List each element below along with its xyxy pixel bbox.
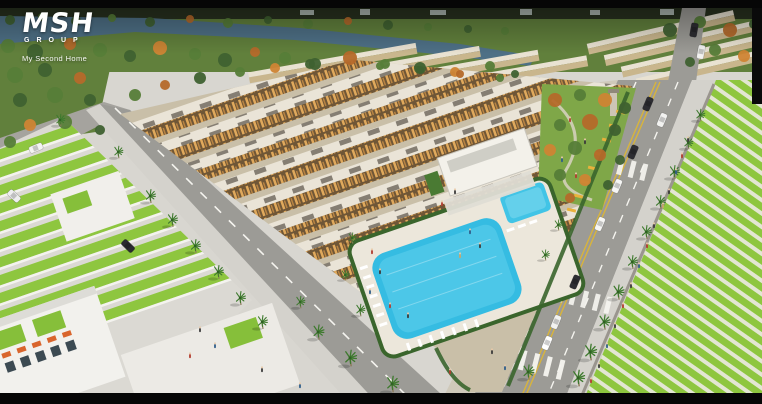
tree	[685, 57, 695, 67]
tree	[554, 169, 566, 181]
tree	[615, 155, 625, 165]
tree	[235, 67, 245, 77]
person	[389, 302, 391, 308]
tree	[84, 94, 96, 106]
person	[261, 366, 263, 372]
person	[687, 136, 689, 142]
tree	[194, 72, 206, 84]
tree	[619, 102, 631, 114]
tree	[579, 174, 591, 186]
tree	[603, 180, 613, 190]
person	[454, 188, 456, 194]
tree	[554, 119, 566, 131]
tree	[160, 80, 170, 90]
msh-group-logo: MSH GROUP My Second Home	[22, 13, 94, 63]
tree	[270, 63, 280, 73]
tree	[496, 74, 504, 82]
tree	[7, 67, 23, 83]
tree	[511, 70, 519, 78]
person	[662, 202, 664, 208]
tree	[24, 119, 36, 131]
aerial-render-stage: MSH GROUP My Second Home	[0, 0, 762, 404]
person	[646, 242, 648, 248]
person	[598, 362, 600, 368]
tree	[13, 93, 27, 107]
tree	[582, 114, 598, 130]
person	[407, 312, 409, 318]
person	[675, 168, 677, 174]
logo-tagline: My Second Home	[22, 54, 94, 63]
tree	[47, 87, 63, 103]
tree	[416, 66, 424, 74]
letterbox-bottom	[0, 393, 762, 404]
person	[469, 228, 471, 234]
person	[441, 200, 443, 206]
person	[199, 326, 201, 332]
aerial-render	[0, 0, 762, 404]
person	[479, 242, 481, 248]
person	[459, 252, 461, 258]
person	[681, 152, 683, 158]
person	[590, 377, 592, 383]
person	[668, 188, 670, 194]
person	[614, 322, 616, 328]
tree	[565, 193, 575, 203]
person	[575, 172, 577, 178]
person	[214, 342, 216, 348]
letterbox-top	[0, 0, 762, 8]
person	[449, 368, 451, 374]
person	[569, 116, 571, 122]
logo-brand-text: MSH	[20, 13, 95, 35]
tree	[609, 124, 621, 136]
tree	[129, 89, 141, 101]
tree	[544, 144, 556, 156]
tree	[594, 149, 606, 161]
top-vignette	[0, 8, 762, 54]
tree	[74, 72, 86, 84]
person	[504, 364, 506, 370]
person	[630, 282, 632, 288]
tree	[305, 59, 315, 69]
person	[561, 156, 563, 162]
tree	[485, 61, 495, 71]
tree	[218, 53, 232, 67]
tree	[568, 141, 582, 155]
tree	[38, 63, 52, 77]
person	[371, 248, 373, 254]
tree	[456, 70, 464, 78]
person	[369, 288, 371, 294]
person	[622, 302, 624, 308]
person	[653, 222, 655, 228]
tree	[376, 62, 384, 70]
person	[584, 138, 586, 144]
person	[491, 348, 493, 354]
right-edge-shade	[752, 8, 762, 104]
tree	[95, 125, 105, 135]
tree	[4, 136, 16, 148]
tree	[548, 93, 562, 107]
tree	[598, 93, 612, 107]
tree	[574, 89, 586, 101]
person	[379, 268, 381, 274]
person	[606, 342, 608, 348]
person	[299, 382, 301, 388]
person	[638, 262, 640, 268]
person	[189, 352, 191, 358]
